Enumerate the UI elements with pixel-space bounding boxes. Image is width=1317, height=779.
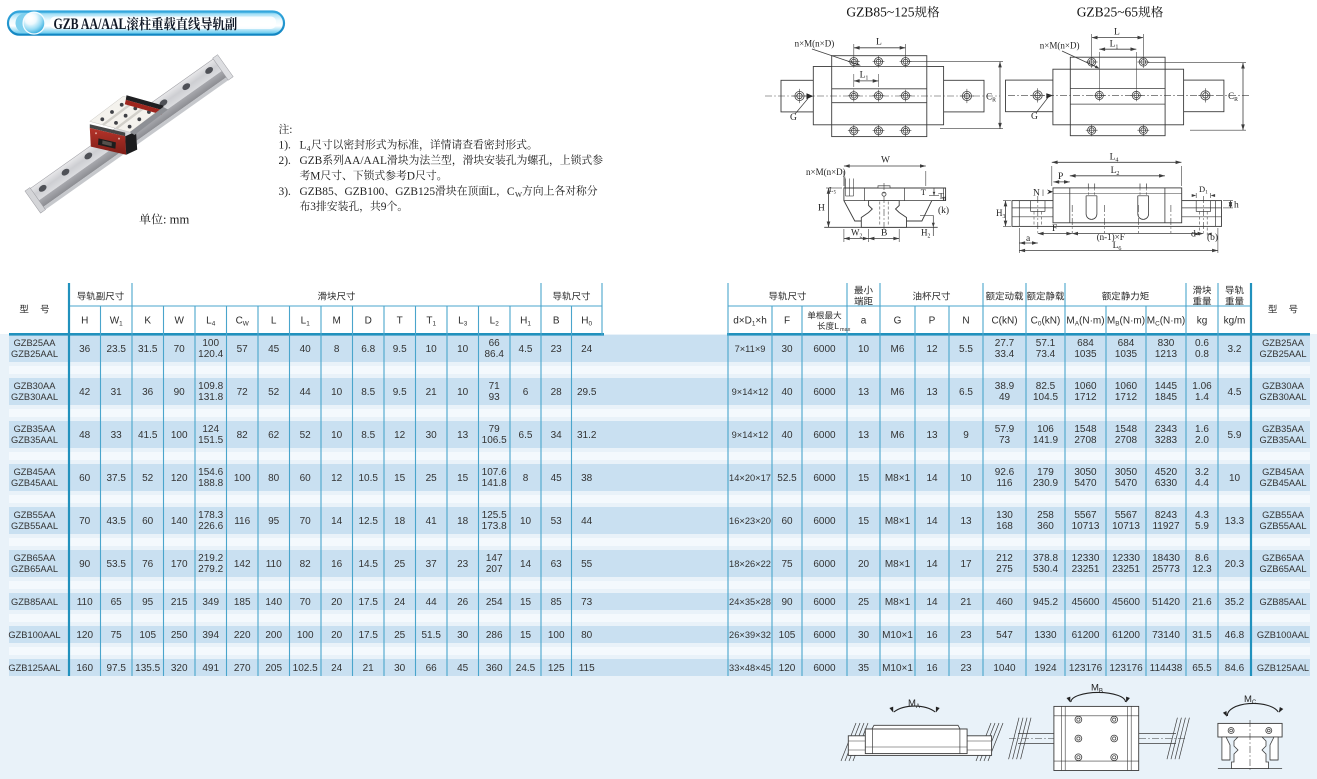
svg-text:44: 44 <box>426 597 438 608</box>
svg-text:33×48×45: 33×48×45 <box>729 663 771 673</box>
svg-text:35: 35 <box>858 663 870 674</box>
svg-text:24: 24 <box>581 344 593 355</box>
svg-text:max: max <box>840 327 851 333</box>
svg-text:1060: 1060 <box>1074 381 1097 392</box>
svg-text:B: B <box>881 229 887 239</box>
svg-text:185: 185 <box>234 597 251 608</box>
svg-text:M8×1: M8×1 <box>885 597 911 608</box>
svg-text:G: G <box>790 113 797 123</box>
svg-text:95: 95 <box>142 597 154 608</box>
svg-text:L: L <box>489 186 496 198</box>
svg-text:GZB30AA: GZB30AA <box>1262 381 1305 391</box>
svg-text:GZB30AA: GZB30AA <box>14 381 57 391</box>
svg-text:20.3: 20.3 <box>1225 559 1245 570</box>
svg-text:1330: 1330 <box>1034 630 1057 641</box>
svg-text:GZB30AAL: GZB30AAL <box>11 392 58 402</box>
svg-text:M: M <box>1147 316 1155 327</box>
svg-text:6: 6 <box>523 387 529 398</box>
svg-text:21: 21 <box>960 597 972 608</box>
svg-text:115: 115 <box>579 663 595 674</box>
svg-text:M: M <box>1091 683 1099 694</box>
svg-text:46.8: 46.8 <box>1225 630 1245 641</box>
svg-text:4.5: 4.5 <box>519 344 533 355</box>
svg-text:95: 95 <box>268 516 280 527</box>
svg-text:30: 30 <box>394 663 406 674</box>
svg-text:57: 57 <box>237 344 249 355</box>
svg-text:30: 30 <box>858 630 870 641</box>
svg-text:55: 55 <box>581 559 593 570</box>
svg-text:6000: 6000 <box>813 344 836 355</box>
svg-text:25: 25 <box>858 597 870 608</box>
svg-text:491: 491 <box>202 663 219 674</box>
svg-text:530.4: 530.4 <box>1033 564 1058 575</box>
svg-text:31: 31 <box>111 387 123 398</box>
svg-text:18: 18 <box>394 516 406 527</box>
svg-text:3050: 3050 <box>1074 467 1097 478</box>
svg-text:n×M(n×D): n×M(n×D) <box>795 39 835 49</box>
svg-text:1035: 1035 <box>1115 349 1138 360</box>
svg-text:4.3: 4.3 <box>1195 510 1209 521</box>
svg-text:R: R <box>1234 97 1238 103</box>
svg-text:C: C <box>236 316 243 327</box>
svg-text:160: 160 <box>76 663 93 674</box>
svg-text:23: 23 <box>551 344 563 355</box>
svg-text:13: 13 <box>858 430 870 441</box>
svg-text:D: D <box>407 170 415 182</box>
svg-text:d: d <box>1191 230 1196 240</box>
svg-text:1: 1 <box>944 196 947 202</box>
svg-text:109.8: 109.8 <box>198 381 223 392</box>
svg-text:M: M <box>1244 694 1252 705</box>
svg-text:25: 25 <box>394 630 406 641</box>
svg-text:13: 13 <box>960 516 972 527</box>
svg-text:n×M(n×D): n×M(n×D) <box>806 167 846 177</box>
svg-text:M8×1: M8×1 <box>885 473 911 484</box>
svg-text:GZB25AA: GZB25AA <box>14 338 57 348</box>
svg-text:100: 100 <box>202 338 219 349</box>
svg-text:226.6: 226.6 <box>198 521 223 532</box>
svg-text:12: 12 <box>394 430 406 441</box>
svg-text:70: 70 <box>174 344 186 355</box>
svg-text:220: 220 <box>234 630 251 641</box>
svg-text:T: T <box>921 187 927 197</box>
svg-text:684: 684 <box>1118 338 1135 349</box>
svg-text:L: L <box>271 316 277 327</box>
svg-text:49: 49 <box>999 392 1011 403</box>
svg-text:2.0: 2.0 <box>1195 435 1209 446</box>
svg-text:60: 60 <box>142 516 154 527</box>
svg-text:H: H <box>520 316 527 327</box>
svg-text:(N·m): (N·m) <box>1160 316 1186 327</box>
svg-text:L: L <box>1114 28 1120 38</box>
svg-text:205: 205 <box>265 663 282 674</box>
svg-text:27.7: 27.7 <box>995 338 1015 349</box>
svg-text:5567: 5567 <box>1115 510 1138 521</box>
svg-text:80: 80 <box>268 473 280 484</box>
svg-text:17: 17 <box>960 559 972 570</box>
svg-text:GZB45AAL: GZB45AAL <box>1259 478 1306 488</box>
svg-text:360: 360 <box>486 663 503 674</box>
svg-text:10: 10 <box>426 344 438 355</box>
svg-text:6000: 6000 <box>813 473 836 484</box>
svg-text:8.5: 8.5 <box>361 430 375 441</box>
svg-text:GZB35AAL: GZB35AAL <box>11 435 58 445</box>
svg-text:45: 45 <box>551 473 563 484</box>
svg-text:9×14×12: 9×14×12 <box>732 387 769 397</box>
svg-text:20: 20 <box>858 559 870 570</box>
svg-text:124: 124 <box>202 424 219 435</box>
svg-text:116: 116 <box>997 478 1013 489</box>
svg-text:(kN): (kN) <box>1041 316 1060 327</box>
svg-text:1: 1 <box>119 321 123 328</box>
svg-text:30: 30 <box>781 344 793 355</box>
svg-text:60: 60 <box>781 516 793 527</box>
svg-text:(b): (b) <box>1207 232 1218 243</box>
svg-text:M6: M6 <box>891 387 905 398</box>
svg-text:15: 15 <box>457 473 469 484</box>
svg-text:0: 0 <box>589 321 593 328</box>
svg-text:9×14×12: 9×14×12 <box>732 430 769 440</box>
svg-text:45600: 45600 <box>1112 597 1140 608</box>
svg-text:73: 73 <box>999 435 1011 446</box>
svg-text:6000: 6000 <box>813 430 836 441</box>
svg-text:38: 38 <box>581 473 593 484</box>
svg-text:M: M <box>1066 316 1074 327</box>
svg-text:43.5: 43.5 <box>106 516 126 527</box>
svg-text:52.5: 52.5 <box>777 473 797 484</box>
svg-text:5.9: 5.9 <box>1228 430 1242 441</box>
svg-text:M6: M6 <box>891 430 905 441</box>
svg-text:31.2: 31.2 <box>577 430 597 441</box>
svg-text:100: 100 <box>171 430 188 441</box>
svg-text:11927: 11927 <box>1152 521 1180 532</box>
svg-text:45: 45 <box>457 663 469 674</box>
svg-text:F: F <box>1052 224 1057 234</box>
svg-text:14: 14 <box>926 516 938 527</box>
svg-text:9: 9 <box>381 201 387 213</box>
svg-text:GZB100AAL: GZB100AAL <box>8 630 60 640</box>
svg-text:GZB: GZB <box>300 155 323 167</box>
svg-text:33: 33 <box>111 430 123 441</box>
svg-text:23: 23 <box>960 663 972 674</box>
svg-text:0.6: 0.6 <box>1195 338 1209 349</box>
svg-text:3).: 3). <box>279 186 291 198</box>
svg-text:L: L <box>834 321 839 331</box>
svg-text:170: 170 <box>171 559 188 570</box>
svg-text:90: 90 <box>79 559 91 570</box>
svg-text:8.6: 8.6 <box>1195 553 1209 564</box>
svg-text:61200: 61200 <box>1072 630 1100 641</box>
svg-text:394: 394 <box>202 630 219 641</box>
svg-text:188.8: 188.8 <box>198 478 223 489</box>
svg-text:120.4: 120.4 <box>198 349 223 360</box>
svg-text:18430: 18430 <box>1152 553 1180 564</box>
svg-text:GZB55AA: GZB55AA <box>1262 510 1305 520</box>
svg-text:29.5: 29.5 <box>577 387 597 398</box>
svg-text:62: 62 <box>268 430 280 441</box>
svg-text:142: 142 <box>234 559 251 570</box>
svg-text:C: C <box>507 186 515 198</box>
svg-text:GZB55AAL: GZB55AAL <box>1259 521 1306 531</box>
svg-text:8: 8 <box>334 344 340 355</box>
svg-text:GZB35AA: GZB35AA <box>14 424 57 434</box>
svg-text:18×26×22: 18×26×22 <box>729 559 771 569</box>
svg-text:1213: 1213 <box>1155 349 1178 360</box>
svg-text:10: 10 <box>960 473 972 484</box>
svg-text:123176: 123176 <box>1069 663 1103 674</box>
svg-text:(N·m): (N·m) <box>1079 316 1105 327</box>
svg-text:270: 270 <box>234 663 251 674</box>
svg-text:0.8: 0.8 <box>1195 349 1209 360</box>
svg-text:25773: 25773 <box>1152 564 1180 575</box>
svg-text:GZB25AAL: GZB25AAL <box>11 349 58 359</box>
svg-text:275: 275 <box>996 564 1013 575</box>
svg-text:L: L <box>876 38 882 48</box>
svg-text:93: 93 <box>489 392 501 403</box>
svg-text:24: 24 <box>394 597 406 608</box>
svg-text:207: 207 <box>486 564 503 575</box>
svg-text:3: 3 <box>1003 214 1006 220</box>
svg-text:212: 212 <box>996 553 1013 564</box>
svg-text:GZB85~125: GZB85~125 <box>846 5 914 20</box>
svg-text:21: 21 <box>363 663 375 674</box>
svg-text:1035: 1035 <box>1074 349 1097 360</box>
svg-text:3283: 3283 <box>1155 435 1178 446</box>
svg-text:151.5: 151.5 <box>198 435 223 446</box>
svg-text:100: 100 <box>548 630 565 641</box>
svg-text:9: 9 <box>963 430 969 441</box>
svg-text:10: 10 <box>331 387 343 398</box>
svg-text:H: H <box>818 204 825 214</box>
svg-text:1.4: 1.4 <box>1195 392 1209 403</box>
svg-text:254: 254 <box>486 597 503 608</box>
svg-text:44: 44 <box>300 387 312 398</box>
svg-text:23: 23 <box>960 630 972 641</box>
svg-text:M: M <box>908 698 916 709</box>
svg-text:W: W <box>515 190 523 199</box>
svg-text:42: 42 <box>79 387 91 398</box>
svg-text:106.5: 106.5 <box>482 435 507 446</box>
svg-text:1: 1 <box>865 75 868 81</box>
svg-text:GZB125AAL: GZB125AAL <box>8 663 60 673</box>
svg-text:72: 72 <box>237 387 249 398</box>
svg-text:147: 147 <box>486 553 503 564</box>
svg-text:25: 25 <box>426 473 438 484</box>
svg-text:36: 36 <box>79 344 91 355</box>
svg-text:5567: 5567 <box>1074 510 1097 521</box>
svg-text:6000: 6000 <box>813 516 836 527</box>
svg-text:114438: 114438 <box>1150 663 1183 674</box>
svg-text:W: W <box>881 156 890 166</box>
svg-text:140: 140 <box>171 516 188 527</box>
svg-text:3: 3 <box>464 321 468 328</box>
svg-text:1712: 1712 <box>1115 392 1138 403</box>
svg-text:110: 110 <box>266 559 282 570</box>
svg-text:60: 60 <box>300 473 312 484</box>
svg-text:52: 52 <box>300 430 312 441</box>
svg-text:1.06: 1.06 <box>1192 381 1212 392</box>
svg-text:17.5: 17.5 <box>358 630 378 641</box>
svg-text:7×11×9: 7×11×9 <box>735 344 766 354</box>
svg-text:154.6: 154.6 <box>198 467 223 478</box>
svg-text:60: 60 <box>79 473 91 484</box>
svg-text:GZB125: GZB125 <box>395 186 435 198</box>
svg-text:P: P <box>929 316 936 327</box>
svg-text:15: 15 <box>394 473 406 484</box>
svg-text:16: 16 <box>331 559 343 570</box>
svg-text:10: 10 <box>457 344 469 355</box>
svg-text:M10×1: M10×1 <box>882 630 913 641</box>
svg-text:97.5: 97.5 <box>106 663 126 674</box>
svg-text:20: 20 <box>331 597 343 608</box>
svg-text:M6: M6 <box>891 344 905 355</box>
svg-text:3.2: 3.2 <box>1195 467 1209 478</box>
svg-text:G: G <box>894 316 902 327</box>
svg-text:kg/m: kg/m <box>1224 316 1246 327</box>
svg-text:82: 82 <box>237 430 249 441</box>
svg-text:23: 23 <box>457 559 469 570</box>
svg-text:10.5: 10.5 <box>358 473 378 484</box>
svg-text:8243: 8243 <box>1155 510 1178 521</box>
svg-text:141.8: 141.8 <box>482 478 507 489</box>
svg-text:12.5: 12.5 <box>358 516 378 527</box>
svg-text:123176: 123176 <box>1109 663 1143 674</box>
svg-text:14: 14 <box>926 597 938 608</box>
svg-text:360: 360 <box>1037 521 1054 532</box>
svg-text:GZB65AAL: GZB65AAL <box>1259 564 1306 574</box>
svg-text:(n-1)×F: (n-1)×F <box>1097 232 1125 242</box>
svg-text:105: 105 <box>139 630 156 641</box>
svg-text:14×20×17: 14×20×17 <box>729 473 771 483</box>
svg-text:12.3: 12.3 <box>1192 564 1212 575</box>
svg-text:14.5: 14.5 <box>358 559 378 570</box>
svg-text:M10×1: M10×1 <box>882 663 913 674</box>
svg-text:2: 2 <box>1116 171 1119 177</box>
svg-text:d×D: d×D <box>733 316 752 327</box>
svg-text:1.6: 1.6 <box>1195 424 1209 435</box>
svg-text:D: D <box>365 316 372 327</box>
svg-text:86.4: 86.4 <box>484 349 504 360</box>
svg-text:15: 15 <box>858 473 870 484</box>
svg-text:75: 75 <box>111 630 123 641</box>
svg-text:106: 106 <box>1037 424 1054 435</box>
svg-text:945.2: 945.2 <box>1033 597 1058 608</box>
svg-text:2: 2 <box>928 233 931 239</box>
svg-text:25: 25 <box>394 559 406 570</box>
svg-text:1: 1 <box>306 321 310 328</box>
svg-text:104.5: 104.5 <box>1033 392 1058 403</box>
svg-text:85: 85 <box>551 597 563 608</box>
svg-text:6330: 6330 <box>1155 478 1178 489</box>
svg-text:40: 40 <box>300 344 312 355</box>
svg-text:66: 66 <box>426 663 438 674</box>
svg-text:W: W <box>243 321 250 328</box>
svg-text:10: 10 <box>331 430 343 441</box>
svg-text:52: 52 <box>142 473 154 484</box>
svg-text:GZB85: GZB85 <box>300 186 334 198</box>
svg-text:168: 168 <box>996 521 1013 532</box>
svg-text:GZB65AA: GZB65AA <box>14 553 57 563</box>
svg-text:52: 52 <box>268 387 280 398</box>
svg-text:53: 53 <box>551 516 563 527</box>
svg-text:GZB AA/AAL: GZB AA/AAL <box>54 15 127 33</box>
svg-text:3050: 3050 <box>1115 467 1138 478</box>
svg-text:82: 82 <box>300 559 312 570</box>
svg-text:279.2: 279.2 <box>198 564 223 575</box>
svg-text:6000: 6000 <box>813 663 836 674</box>
svg-text:1845: 1845 <box>1155 392 1178 403</box>
svg-text:173.8: 173.8 <box>482 521 507 532</box>
svg-text:75: 75 <box>781 559 793 570</box>
svg-text:44: 44 <box>581 516 593 527</box>
svg-text:13: 13 <box>926 387 938 398</box>
svg-text:53.5: 53.5 <box>106 559 126 570</box>
svg-text:M8×1: M8×1 <box>885 559 911 570</box>
svg-text:16: 16 <box>926 663 938 674</box>
svg-text:215: 215 <box>171 597 188 608</box>
svg-text:6.8: 6.8 <box>361 344 375 355</box>
svg-text:286: 286 <box>486 630 503 641</box>
svg-text:51420: 51420 <box>1152 597 1180 608</box>
svg-text:K: K <box>144 316 151 327</box>
svg-text:L: L <box>300 140 307 152</box>
svg-text:14: 14 <box>926 473 938 484</box>
svg-text:178.3: 178.3 <box>198 510 223 521</box>
svg-text:73.4: 73.4 <box>1036 349 1056 360</box>
svg-text:79: 79 <box>489 424 501 435</box>
svg-text:73140: 73140 <box>1152 630 1180 641</box>
svg-text:M: M <box>310 170 320 182</box>
svg-text:4.4: 4.4 <box>1195 478 1209 489</box>
svg-text:2: 2 <box>859 233 862 239</box>
svg-text:10: 10 <box>1229 473 1241 484</box>
svg-text:C: C <box>1252 699 1257 706</box>
svg-text:40: 40 <box>781 430 793 441</box>
svg-text:41: 41 <box>426 516 438 527</box>
svg-text:41.5: 41.5 <box>138 430 158 441</box>
svg-text:G: G <box>1031 112 1038 122</box>
svg-text:9.5: 9.5 <box>393 344 407 355</box>
svg-text:24×35×28: 24×35×28 <box>729 597 771 607</box>
svg-text:100: 100 <box>297 630 314 641</box>
svg-text:120: 120 <box>171 473 188 484</box>
svg-text:6: 6 <box>1118 246 1121 252</box>
svg-text:63: 63 <box>551 559 563 570</box>
svg-text:a: a <box>1026 234 1031 244</box>
svg-text:45600: 45600 <box>1072 597 1100 608</box>
svg-text:57.1: 57.1 <box>1036 338 1056 349</box>
svg-text:GZB65AA: GZB65AA <box>1262 553 1305 563</box>
svg-text:1040: 1040 <box>993 663 1016 674</box>
svg-text:179: 179 <box>1037 467 1054 478</box>
svg-text:105: 105 <box>779 630 796 641</box>
svg-text:(k): (k) <box>938 205 949 216</box>
svg-text:T: T <box>397 316 403 327</box>
svg-text:h: h <box>1234 201 1239 211</box>
svg-text:8.5: 8.5 <box>361 387 375 398</box>
svg-text:37.5: 37.5 <box>106 473 126 484</box>
svg-text:R: R <box>992 97 996 103</box>
svg-text:219.2: 219.2 <box>198 553 223 564</box>
svg-text:kg: kg <box>1197 316 1208 327</box>
svg-text:GZB45AA: GZB45AA <box>14 467 57 477</box>
svg-text:GZB65AAL: GZB65AAL <box>11 564 58 574</box>
svg-text:10713: 10713 <box>1112 521 1140 532</box>
svg-text:14: 14 <box>520 559 532 570</box>
svg-text:M: M <box>1107 316 1115 327</box>
svg-text:GZB85AAL: GZB85AAL <box>11 597 58 607</box>
svg-text:B: B <box>1099 687 1103 694</box>
